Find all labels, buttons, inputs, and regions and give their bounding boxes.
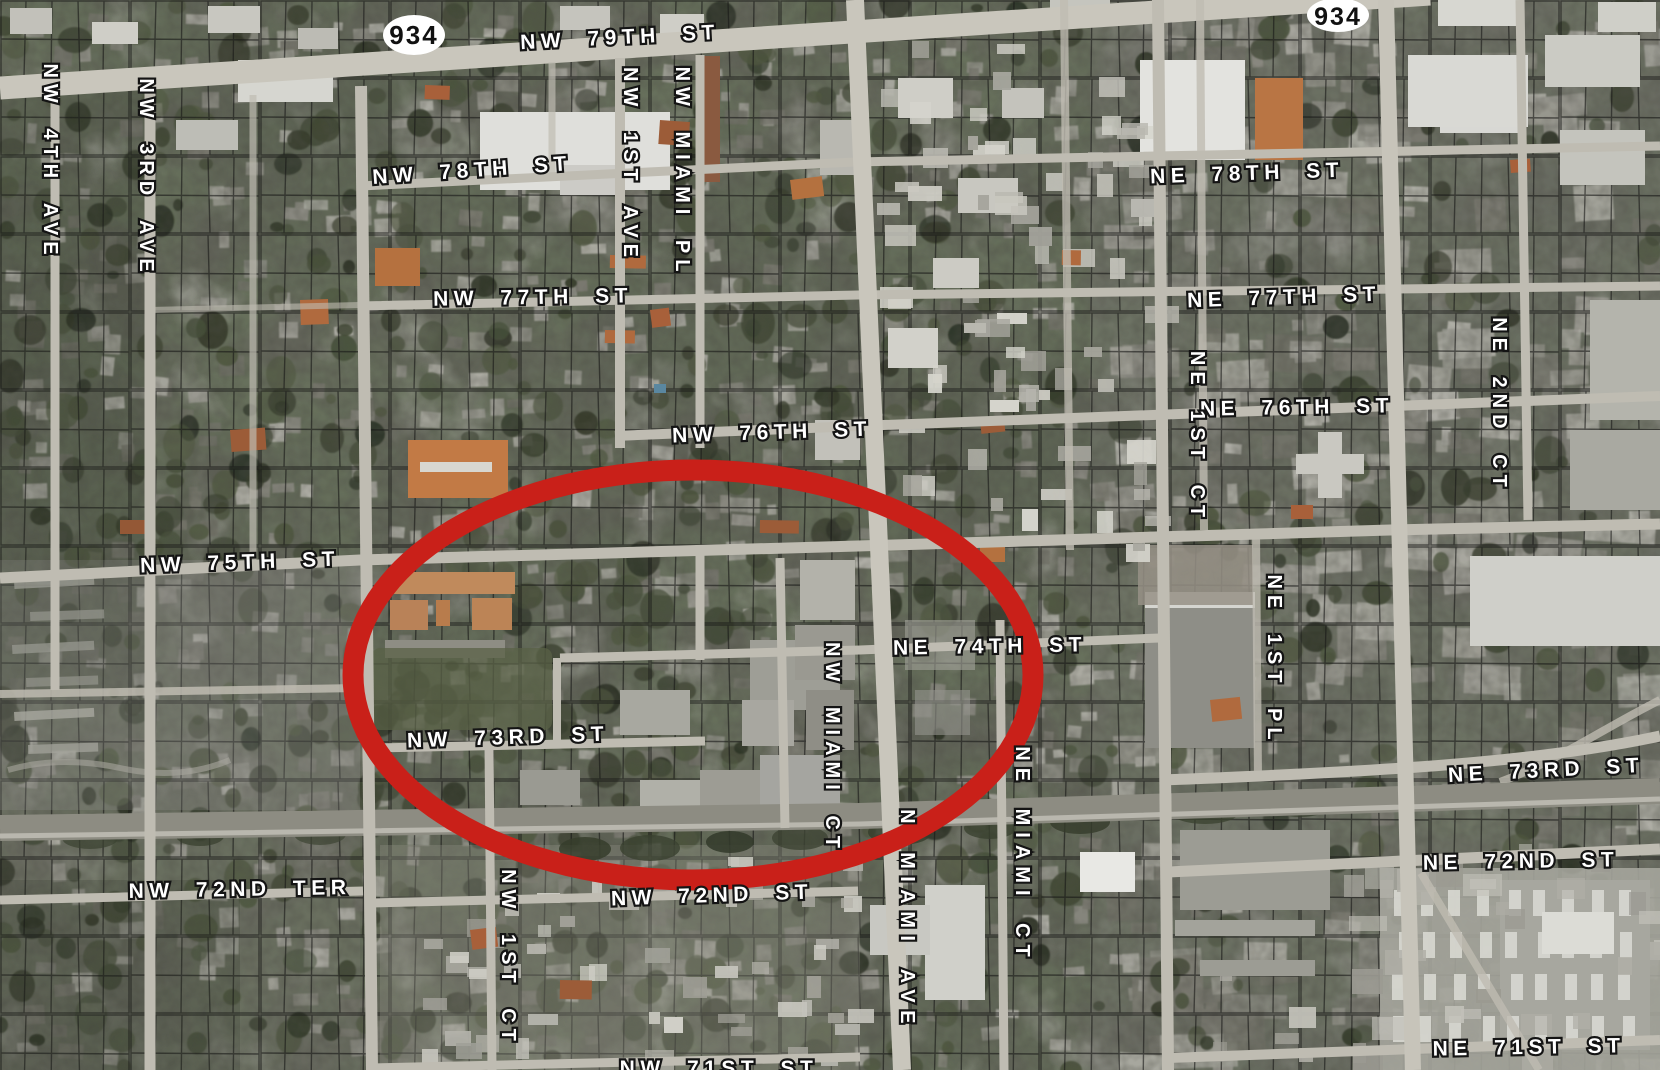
svg-text:NW 71ST ST: NW 71ST ST	[620, 1057, 819, 1070]
svg-text:NE 1ST CT: NE 1ST CT	[1186, 351, 1208, 523]
svg-text:NW MIAMI PL: NW MIAMI PL	[671, 67, 693, 278]
svg-text:NW MIAMI CT: NW MIAMI CT	[821, 642, 843, 854]
svg-text:NW 1ST CT: NW 1ST CT	[497, 869, 519, 1047]
svg-text:NE 72ND ST: NE 72ND ST	[1423, 848, 1620, 874]
svg-text:NE 1ST PL: NE 1ST PL	[1263, 574, 1285, 745]
svg-text:NE MIAMI CT: NE MIAMI CT	[1011, 746, 1033, 963]
svg-text:NW 4TH AVE: NW 4TH AVE	[39, 63, 61, 260]
svg-text:NE 74TH ST: NE 74TH ST	[893, 633, 1087, 659]
svg-text:NE 71ST ST: NE 71ST ST	[1432, 1034, 1625, 1060]
svg-text:934: 934	[389, 20, 438, 50]
svg-text:NW 3RD AVE: NW 3RD AVE	[135, 78, 157, 277]
svg-text:NW 72ND TER: NW 72ND TER	[128, 876, 351, 903]
svg-text:NE 76TH ST: NE 76TH ST	[1200, 394, 1394, 420]
svg-text:NW 77TH ST: NW 77TH ST	[433, 284, 633, 310]
svg-text:N MIAMI AVE: N MIAMI AVE	[896, 809, 918, 1031]
svg-text:NE 2ND CT: NE 2ND CT	[1488, 317, 1510, 493]
svg-text:934: 934	[1314, 3, 1362, 31]
svg-text:NW 1ST AVE: NW 1ST AVE	[619, 67, 641, 263]
